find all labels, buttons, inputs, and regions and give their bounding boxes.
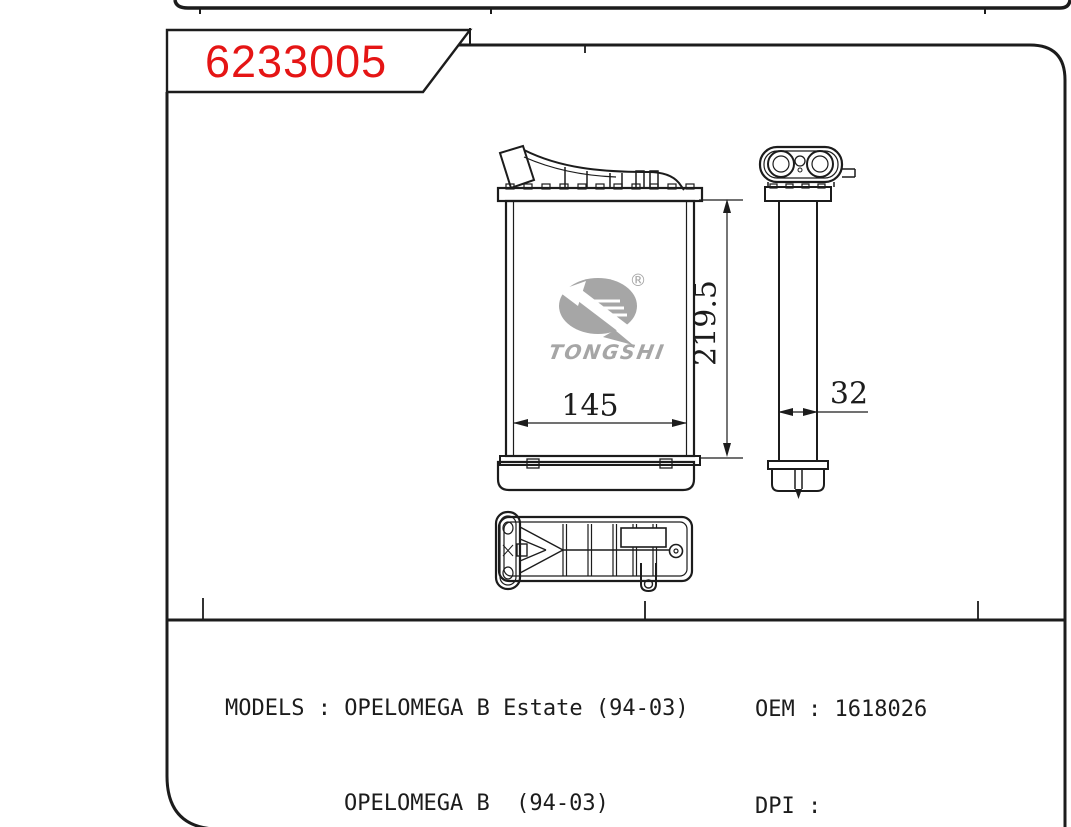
reference-table: OEM : 1618026 DPI : AVA : OL6196 NISSENS… [755, 629, 954, 827]
ref-label-oem: OEM [755, 697, 795, 722]
heater-core-bottom-view [496, 512, 692, 591]
ref-value-oem: 1618026 [835, 697, 928, 722]
separator: : [795, 697, 835, 722]
ref-row-dpi: DPI : [755, 791, 954, 823]
registered-trademark-symbol: ® [630, 271, 647, 291]
dim-core-height-label: 219.5 [689, 280, 724, 366]
models-label: MODELS [225, 696, 304, 721]
model-entry-2: OPELOMEGA B (94-03) [344, 791, 609, 816]
models-line-1: MODELS : OPELOMEGA B Estate (94-03) [225, 693, 689, 725]
separator: : [304, 696, 344, 721]
previous-card-edge [175, 0, 1070, 14]
brand-logo-watermark [558, 278, 637, 345]
dim-core-width-label: 145 [561, 389, 618, 424]
ref-label-dpi: DPI [755, 794, 795, 819]
model-entry-1: OPELOMEGA B Estate (94-03) [344, 696, 688, 721]
section-divider [167, 598, 1065, 620]
catalog-card-page: 6233005 219.5 145 32 ® TONGSHI MODELS : … [0, 0, 1071, 827]
separator: : [795, 794, 835, 819]
ref-row-oem: OEM : 1618026 [755, 694, 954, 726]
models-line-2: OPELOMEGA B (94-03) [225, 788, 689, 820]
heater-core-side-view [760, 147, 855, 499]
part-number: 6233005 [205, 36, 387, 88]
dim-core-depth-label: 32 [830, 377, 868, 412]
brand-logo-text: TONGSHI [547, 340, 668, 364]
spec-table: MODELS : OPELOMEGA B Estate (94-03) OPEL… [225, 629, 689, 827]
